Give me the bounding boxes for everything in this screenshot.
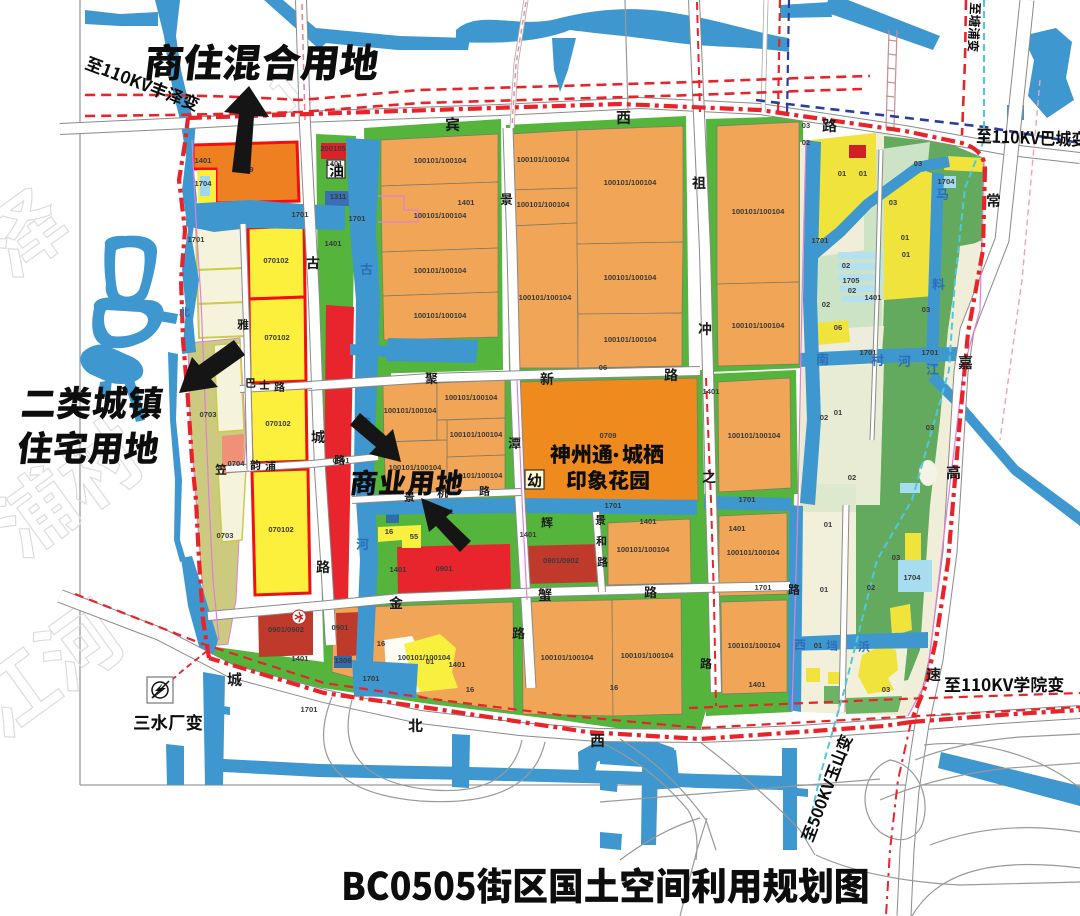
svg-text:100101/100104: 100101/100104	[384, 406, 438, 415]
svg-text:1701: 1701	[301, 705, 319, 714]
svg-text:1701: 1701	[292, 210, 310, 219]
svg-text:070102: 070102	[268, 525, 293, 534]
svg-text:03: 03	[922, 305, 930, 314]
svg-text:16: 16	[610, 683, 618, 692]
svg-text:1401: 1401	[292, 654, 310, 663]
svg-text:0901: 0901	[332, 623, 350, 632]
svg-text:16: 16	[466, 685, 474, 694]
svg-text:1701: 1701	[922, 348, 940, 357]
svg-text:01: 01	[426, 657, 435, 666]
svg-text:200105: 200105	[320, 144, 346, 153]
svg-text:02: 02	[867, 583, 875, 592]
svg-text:03: 03	[892, 553, 900, 562]
svg-text:100101/100104: 100101/100104	[604, 273, 658, 282]
svg-text:100101/100104: 100101/100104	[728, 641, 782, 650]
svg-text:100101/100104: 100101/100104	[517, 155, 571, 164]
svg-text:1401: 1401	[449, 660, 467, 669]
svg-text:0901/0902: 0901/0902	[268, 625, 304, 634]
svg-text:1401: 1401	[729, 524, 747, 533]
svg-text:1401: 1401	[520, 530, 538, 539]
svg-text:0901: 0901	[436, 564, 454, 573]
svg-text:1701: 1701	[739, 495, 757, 504]
svg-text:1401: 1401	[749, 680, 767, 689]
svg-text:0703: 0703	[217, 531, 234, 540]
svg-text:100101/100104: 100101/100104	[604, 335, 658, 344]
svg-text:1401: 1401	[640, 517, 658, 526]
svg-text:03: 03	[882, 685, 890, 694]
svg-text:01: 01	[838, 169, 847, 178]
svg-text:070102: 070102	[263, 256, 288, 265]
svg-text:100101/100104: 100101/100104	[414, 211, 468, 220]
svg-text:100101/100104: 100101/100104	[604, 178, 658, 187]
svg-text:100101/100104: 100101/100104	[414, 311, 468, 320]
svg-text:01: 01	[820, 585, 829, 594]
svg-text:100101/100104: 100101/100104	[541, 653, 595, 662]
svg-text:0709: 0709	[600, 431, 617, 440]
svg-text:0704: 0704	[228, 459, 246, 468]
svg-text:100101/100104: 100101/100104	[517, 200, 571, 209]
svg-text:100101/100104: 100101/100104	[617, 545, 671, 554]
svg-text:01: 01	[824, 520, 833, 529]
svg-text:1401: 1401	[325, 239, 343, 248]
svg-text:1401: 1401	[865, 293, 883, 302]
svg-text:1704: 1704	[195, 179, 213, 188]
svg-text:1311: 1311	[330, 192, 347, 201]
svg-text:1701: 1701	[755, 583, 773, 592]
svg-text:100101/100104: 100101/100104	[728, 431, 782, 440]
svg-text:100101/100104: 100101/100104	[445, 393, 499, 402]
svg-text:01: 01	[834, 408, 843, 417]
svg-text:1401: 1401	[703, 387, 721, 396]
svg-text:06: 06	[834, 323, 842, 332]
svg-text:02: 02	[820, 413, 828, 422]
svg-text:16: 16	[377, 639, 385, 648]
svg-text:02: 02	[802, 138, 810, 147]
svg-text:01: 01	[814, 641, 823, 650]
svg-text:0703: 0703	[200, 410, 217, 419]
svg-text:1701: 1701	[349, 214, 367, 223]
svg-text:1701: 1701	[605, 501, 623, 510]
svg-text:0901/0902: 0901/0902	[543, 556, 579, 565]
svg-text:01: 01	[859, 169, 868, 178]
svg-text:100101/100104: 100101/100104	[414, 156, 468, 165]
svg-text:1401: 1401	[326, 159, 344, 168]
svg-text:03: 03	[914, 159, 922, 168]
svg-text:06: 06	[599, 363, 607, 372]
svg-text:100101/100104: 100101/100104	[450, 430, 504, 439]
svg-text:1701: 1701	[812, 236, 830, 245]
svg-text:03: 03	[889, 198, 897, 207]
svg-text:1401: 1401	[390, 565, 408, 574]
svg-text:02: 02	[822, 300, 830, 309]
svg-text:02: 02	[848, 473, 856, 482]
svg-text:1705: 1705	[843, 276, 861, 285]
svg-text:1701: 1701	[363, 674, 381, 683]
svg-text:1701: 1701	[188, 235, 206, 244]
svg-text:100101/100104: 100101/100104	[519, 293, 573, 302]
svg-text:1704: 1704	[904, 573, 922, 582]
svg-text:03: 03	[926, 423, 934, 432]
svg-text:55: 55	[410, 532, 419, 541]
svg-text:100101/100104: 100101/100104	[621, 651, 675, 660]
svg-text:02: 02	[842, 261, 850, 270]
svg-text:01: 01	[902, 250, 911, 259]
svg-text:100101/100104: 100101/100104	[398, 653, 452, 662]
svg-text:01: 01	[901, 233, 910, 242]
svg-text:100101/100104: 100101/100104	[732, 321, 786, 330]
svg-text:100101/100104: 100101/100104	[732, 207, 786, 216]
svg-text:02: 02	[848, 286, 856, 295]
svg-text:070102: 070102	[265, 419, 290, 428]
svg-text:100101/100104: 100101/100104	[414, 266, 468, 275]
svg-text:16: 16	[385, 527, 393, 536]
svg-text:1306: 1306	[335, 656, 352, 665]
svg-text:03: 03	[802, 121, 810, 130]
svg-text:070102: 070102	[264, 333, 289, 342]
svg-text:100101/100104: 100101/100104	[727, 548, 781, 557]
svg-text:1401: 1401	[195, 156, 213, 165]
svg-text:1401: 1401	[458, 198, 476, 207]
svg-text:1704: 1704	[938, 177, 956, 186]
